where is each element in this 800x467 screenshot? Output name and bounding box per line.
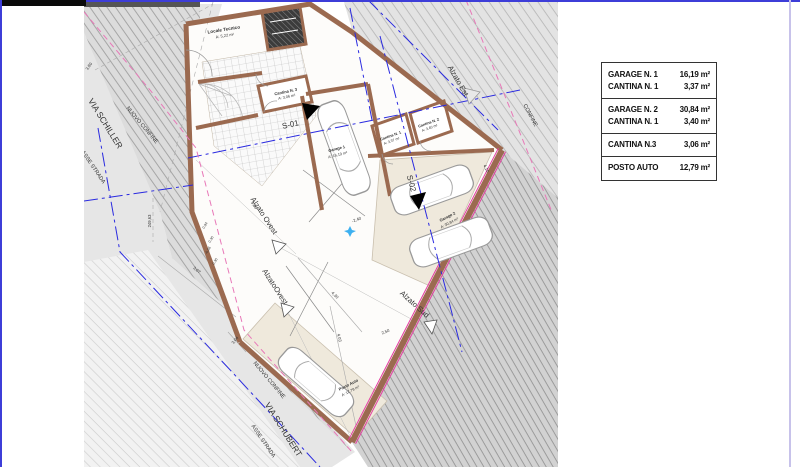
neighbor-block-roof-edge: [84, 2, 200, 7]
legend-label: GARAGE N. 2: [608, 104, 658, 116]
legend-divider: [602, 156, 716, 157]
legend-value: 16,19 m²: [680, 69, 710, 81]
legend-value: 3,40 m²: [684, 116, 710, 128]
legend-row-cantina-1a: CANTINA N. 1 3,37 m²: [608, 81, 710, 93]
legend-value: 30,84 m²: [680, 104, 710, 116]
legend-divider: [602, 98, 716, 99]
legend-row-garage-1: GARAGE N. 1 16,19 m²: [608, 69, 710, 81]
window-left-border: [0, 0, 2, 467]
window-right-border: [789, 0, 791, 467]
legend-divider: [602, 133, 716, 134]
legend-row-cantina-1b: CANTINA N. 1 3,40 m²: [608, 116, 710, 128]
legend-label: GARAGE N. 1: [608, 69, 658, 81]
legend-row-posto-auto: POSTO AUTO 12,79 m²: [608, 162, 710, 174]
legend-value: 3,37 m²: [684, 81, 710, 93]
legend-label: CANTINA N. 1: [608, 116, 658, 128]
dim-249-63: 249,63: [147, 214, 152, 227]
area-legend: GARAGE N. 1 16,19 m² CANTINA N. 1 3,37 m…: [601, 62, 717, 181]
title-bar-fragment: [0, 0, 86, 6]
legend-label: CANTINA N. 1: [608, 81, 658, 93]
legend-value: 3,06 m²: [684, 139, 710, 151]
window-top-border: [0, 0, 800, 2]
legend-label: CANTINA N.3: [608, 139, 656, 151]
legend-value: 12,79 m²: [680, 162, 710, 174]
legend-label: POSTO AUTO: [608, 162, 658, 174]
legend-row-garage-2: GARAGE N. 2 30,84 m²: [608, 104, 710, 116]
legend-row-cantina-3: CANTINA N.3 3,06 m²: [608, 139, 710, 151]
